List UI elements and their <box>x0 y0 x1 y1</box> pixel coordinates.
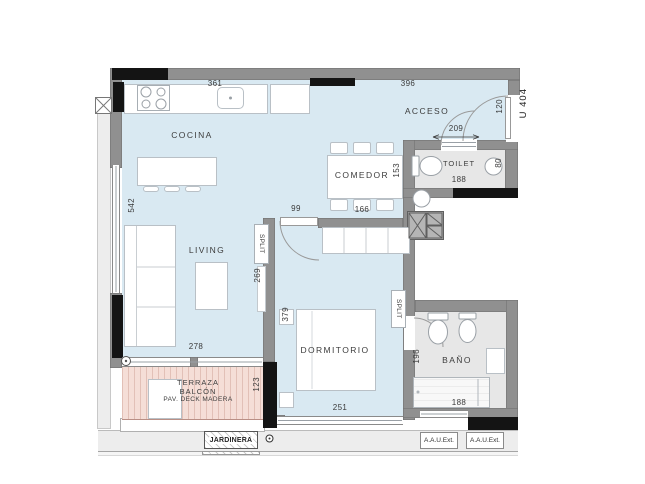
label-terraza-block: TERRAZA BALCÓN PAV. DECK MADERA <box>140 378 256 404</box>
fridge <box>270 84 310 114</box>
wall-black-bano <box>468 417 518 430</box>
dim-166: 166 <box>342 205 382 214</box>
wall-bano-right <box>506 300 518 420</box>
split-label: SPLIT <box>258 234 265 254</box>
label-pav-deck: PAV. DECK MADERA <box>140 396 256 404</box>
label-cocina: COCINA <box>152 130 232 140</box>
exterior-left-strip <box>97 99 111 429</box>
dim-379: 379 <box>281 307 290 322</box>
duct-shaft <box>407 211 444 240</box>
unit-label: U 404 <box>518 88 529 118</box>
dim-396: 396 <box>388 79 428 88</box>
label-acceso: ACCESO <box>387 106 467 116</box>
label-dormitorio: DORMITORIO <box>285 345 385 355</box>
dining-chair <box>353 142 371 154</box>
dim-269: 269 <box>253 268 262 283</box>
window-left <box>112 165 120 293</box>
dim-196: 196 <box>412 349 421 364</box>
dim-120: 120 <box>495 99 504 114</box>
dim-361: 361 <box>195 79 235 88</box>
wall-black-toilet <box>453 188 518 198</box>
stove <box>137 85 170 111</box>
dining-chair <box>376 142 394 154</box>
dim-99: 99 <box>276 204 316 213</box>
floor-plan: SPLIT SPLIT JARDINERA A.A.U.Ext. A.A.U.E… <box>0 0 645 484</box>
label-bano: BAÑO <box>417 355 497 365</box>
wall-black-terrace <box>263 362 277 428</box>
dim-278: 278 <box>176 342 216 351</box>
window-dormitorio <box>277 416 403 425</box>
dining-chair <box>330 142 348 154</box>
window-bano <box>420 410 468 418</box>
jardinera-label: JARDINERA <box>209 437 254 444</box>
wall-toilet-bottom <box>403 188 458 198</box>
wall-bano-top <box>415 300 518 312</box>
dim-153: 153 <box>392 163 401 178</box>
electrical-box-icon <box>95 97 112 114</box>
exterior-bottom-strip <box>98 452 518 456</box>
toilet-door-opening <box>441 139 477 151</box>
bedroom-door-leaf <box>280 217 318 226</box>
entry-door-leaf <box>505 97 511 139</box>
stool <box>185 186 201 192</box>
label-comedor: COMEDOR <box>322 170 402 180</box>
jardinera-strip <box>202 451 260 455</box>
jardinera-box: JARDINERA <box>204 431 258 449</box>
kitchen-island <box>137 157 217 186</box>
aau-ext-box: A.A.U.Ext. <box>466 432 504 449</box>
wardrobe <box>322 227 410 254</box>
label-living: LIVING <box>167 245 247 255</box>
aau-ext-label: A.A.U.Ext. <box>424 437 454 444</box>
dim-251: 251 <box>320 403 360 412</box>
split-unit-dormitorio: SPLIT <box>391 290 406 328</box>
split-label: SPLIT <box>395 299 402 319</box>
sofa <box>124 225 176 347</box>
wall-black-left-low <box>112 295 123 358</box>
terrace-ledge <box>120 418 265 432</box>
label-balcon: BALCÓN <box>140 387 256 396</box>
dim-209: 209 <box>436 124 476 133</box>
wall-black-top-inner <box>310 78 355 86</box>
dim-123: 123 <box>252 377 261 392</box>
window-mullion <box>190 357 198 367</box>
wall-black-topleft <box>112 68 168 80</box>
stool <box>143 186 159 192</box>
dim-188-toilet: 188 <box>439 175 479 184</box>
label-terraza: TERRAZA <box>140 378 256 387</box>
dim-80: 80 <box>494 158 503 168</box>
dim-188-bano: 188 <box>439 398 479 407</box>
stool <box>164 186 180 192</box>
split-unit-living: SPLIT <box>254 224 269 264</box>
wall-black-left-top <box>113 82 124 112</box>
nightstand <box>279 392 294 408</box>
aau-ext-label: A.A.U.Ext. <box>470 437 500 444</box>
aau-ext-box: A.A.U.Ext. <box>420 432 458 449</box>
kitchen-sink <box>217 87 244 109</box>
label-toilet: TOILET <box>429 159 489 168</box>
dim-542: 542 <box>127 198 136 213</box>
coffee-table <box>195 262 228 310</box>
